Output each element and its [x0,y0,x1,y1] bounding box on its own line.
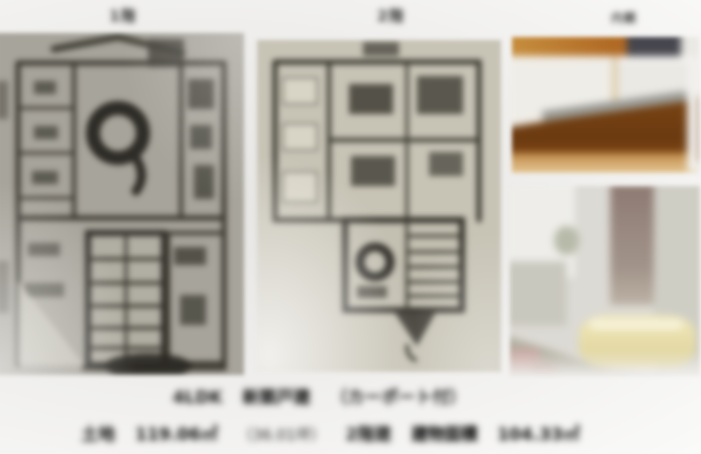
building-area: 104.33㎡ [497,425,580,445]
dark-cabinet [627,37,681,56]
structure: 2階建 [346,425,392,445]
caption-line-1: 4LDK 新築戸建 （カーポート付） [0,383,701,408]
land-area: 119.06㎡ [135,425,218,445]
land-tsubo: （36.01坪） [238,426,326,444]
bottom-fade [510,351,700,376]
caption-line-2: 土地 119.06㎡ （36.01坪） 2階建 建物面積 104.33㎡ [0,420,701,445]
vanity-counter [510,261,567,325]
floor-plan-2f-drawing [257,40,501,372]
floor-plan-2f [257,40,501,372]
floor1-label: 1階 [100,5,146,26]
right-wall [687,57,699,171]
bathtub-highlight [589,319,683,329]
floor-strip [512,153,697,173]
floor-plan-1f [0,33,244,375]
bathroom-photo [510,186,700,376]
accent-panel [610,186,654,305]
kitchen-photo [512,37,699,173]
land-label: 土地 [81,425,115,445]
interior-label: 内観 [598,9,650,26]
property-note: （カーポート付） [330,388,466,408]
layout-type: 4LDK [173,388,223,408]
floor-plan-1f-drawing [0,33,244,375]
floor2-label: 2階 [368,5,414,26]
wood-beam [512,37,639,56]
property-type: 新築戸建 [242,388,310,408]
decor-smudge [554,226,579,255]
building-area-label: 建物面積 [411,425,477,445]
property-listing-image: 1階 2階 内観 [0,0,701,454]
